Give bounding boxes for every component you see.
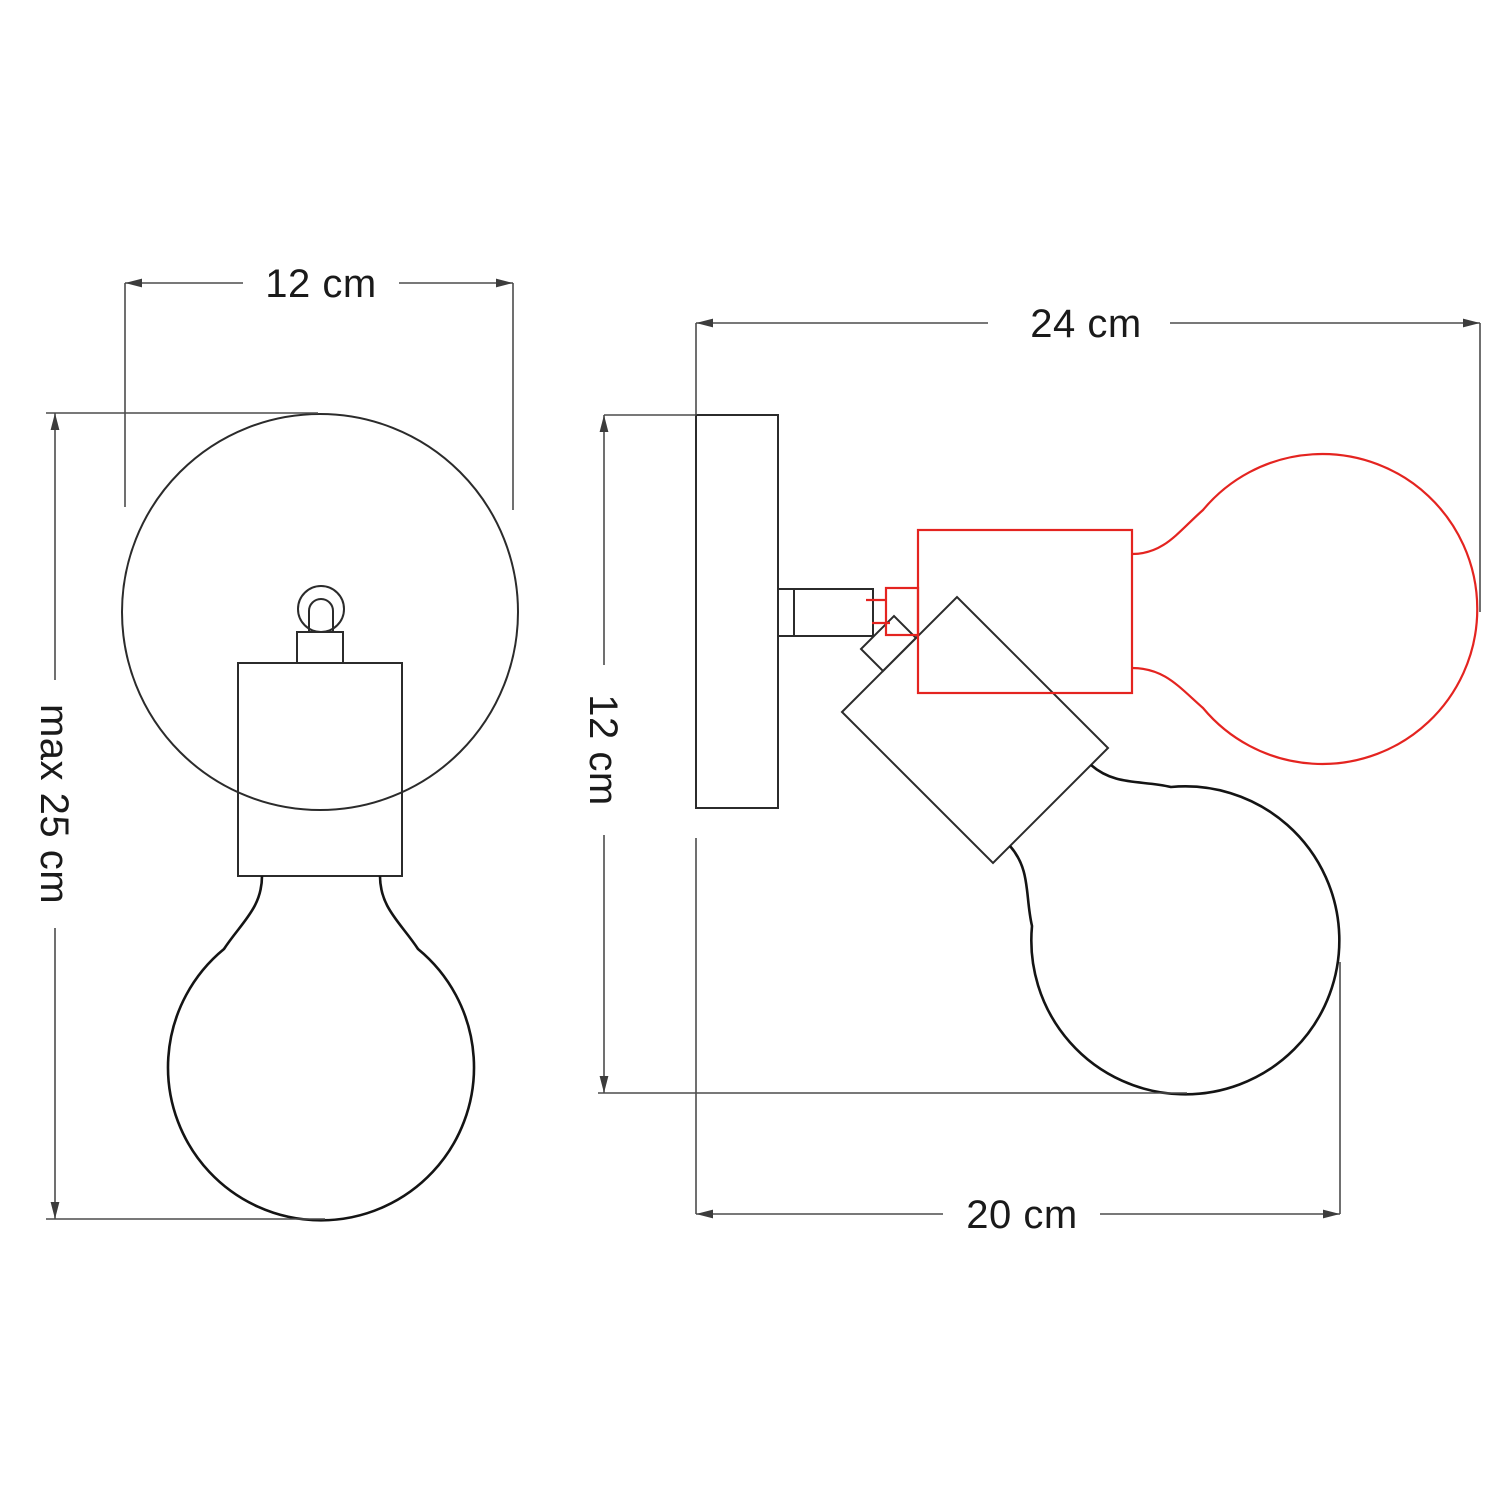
- side-projection-label: 20 cm: [966, 1193, 1077, 1237]
- socket-neck-front: [297, 632, 343, 663]
- arrow-right-icon: [1463, 319, 1480, 328]
- side-depth-dimension: [696, 323, 1480, 612]
- hanging-loop-ring: [298, 586, 344, 632]
- arrow-left-icon: [696, 319, 713, 328]
- dimension-drawing-canvas: 12 cm max 25 cm 24 cm 12 cm 20 cm: [0, 0, 1500, 1500]
- lamp-holder-tilted: [842, 597, 1108, 863]
- side-view-alternate-position: [866, 454, 1477, 764]
- arrow-up-icon: [600, 415, 609, 432]
- front-width-dimension: [125, 283, 513, 510]
- hanging-loop-inner: [309, 599, 333, 633]
- wall-lamp-dimension-diagram: 12 cm max 25 cm 24 cm 12 cm 20 cm: [0, 0, 1500, 1500]
- arrow-right-icon: [496, 279, 513, 288]
- globe-bulb-front: [168, 876, 474, 1220]
- globe-bulb-tilted: [1010, 765, 1339, 1094]
- front-view-bulb: [168, 876, 474, 1220]
- side-height-dimension: [598, 415, 1187, 1093]
- side-height-label: 12 cm: [581, 694, 625, 805]
- arrow-down-icon: [51, 1202, 60, 1219]
- wall-plate-front-circle: [122, 414, 518, 810]
- arrow-left-icon: [125, 279, 142, 288]
- front-height-dimension: [46, 413, 325, 1219]
- lamp-holder-red: [918, 530, 1132, 693]
- arrow-right-icon: [1323, 1210, 1340, 1219]
- side-depth-label: 24 cm: [1030, 302, 1141, 346]
- front-width-label: 12 cm: [265, 262, 376, 306]
- dimension-labels: 12 cm max 25 cm 24 cm 12 cm 20 cm: [32, 262, 1142, 1237]
- arrow-down-icon: [600, 1076, 609, 1093]
- side-view: [696, 415, 1108, 863]
- socket-neck-red: [886, 588, 918, 635]
- wall-plate-side: [696, 415, 778, 808]
- front-view: [122, 414, 518, 876]
- side-projection-dimension: [696, 838, 1340, 1214]
- mounting-arm: [778, 589, 873, 636]
- lamp-holder-front: [238, 663, 402, 876]
- side-view-bulb: [1010, 765, 1339, 1094]
- arrow-left-icon: [696, 1210, 713, 1219]
- front-height-label: max 25 cm: [32, 704, 76, 904]
- arrow-up-icon: [51, 413, 60, 430]
- socket-neck-tilted: [861, 616, 916, 671]
- globe-bulb-red: [1132, 454, 1477, 764]
